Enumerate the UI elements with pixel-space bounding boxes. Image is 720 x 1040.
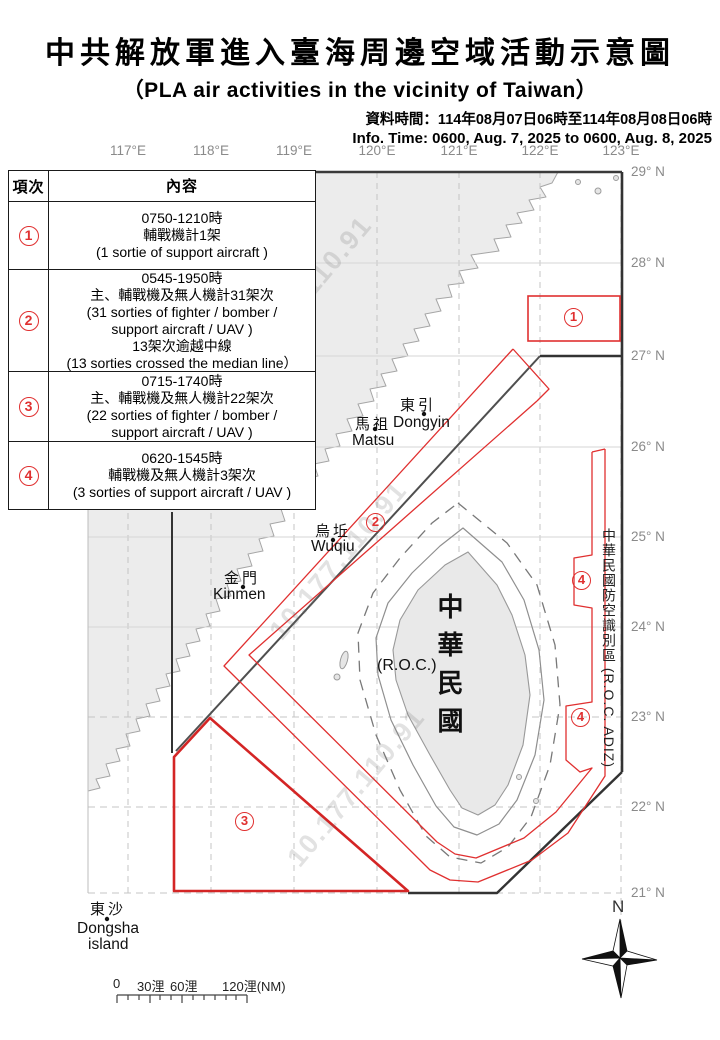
scale-label-0: 0 xyxy=(113,976,120,991)
lat-label: 26° N xyxy=(631,439,665,454)
label-adiz: 中華民國防空識別區 (R.O.C. ADIZ) xyxy=(599,528,619,768)
lat-label: 23° N xyxy=(631,709,665,724)
table-header-row: 項次 內容 xyxy=(9,171,315,201)
col-header-content: 內容 xyxy=(49,171,315,201)
scale-label-30: 30浬 xyxy=(137,976,164,995)
row4-content: 0620-1545時 輔戰機及無人機計3架次 (3 sorties of sup… xyxy=(49,442,315,509)
data-time-en: Info. Time: 0600, Aug. 7, 2025 to 0600, … xyxy=(0,130,720,147)
lat-label: 22° N xyxy=(631,799,665,814)
table-row: 2 0545-1950時 主、輔戰機及無人機計31架次 (31 sorties … xyxy=(9,269,315,371)
col-header-item: 項次 xyxy=(9,171,49,201)
place-wuqiu-en: Wuqiu xyxy=(311,538,355,556)
row2-number: 2 xyxy=(19,311,39,331)
activity-table: 項次 內容 1 0750-1210時 輔戰機計1架 (1 sortie of s… xyxy=(8,170,316,510)
page-title: 中共解放軍進入臺海周邊空域活動示意圖 xyxy=(0,28,720,72)
scale-bar xyxy=(117,995,247,1003)
zone4-marker: 4 xyxy=(572,571,591,590)
row2-content: 0545-1950時 主、輔戰機及無人機計31架次 (31 sorties of… xyxy=(49,270,315,371)
lat-label: 21° N xyxy=(631,885,665,900)
zone1-marker: 1 xyxy=(564,308,583,327)
pla-activity-map-page: 10.177.110.91 10.177.110.91 10.177.110.9… xyxy=(0,0,720,1040)
scale-label-120: 120浬(NM) xyxy=(222,976,286,995)
lat-label: 24° N xyxy=(631,619,665,634)
table-row: 4 0620-1545時 輔戰機及無人機計3架次 (3 sorties of s… xyxy=(9,441,315,509)
place-matsu-en: Matsu xyxy=(352,432,394,450)
place-kinmen-zh: 金門 xyxy=(224,567,260,588)
lat-label: 29° N xyxy=(631,164,665,179)
compass-north-label: N xyxy=(612,897,624,917)
penghu-islands xyxy=(334,650,350,680)
place-dongsha-zh: 東沙 xyxy=(90,898,126,919)
compass-rose xyxy=(582,919,657,998)
data-time-zh: 資料時間：114年08月07日06時至114年08月08日06時 xyxy=(0,108,720,129)
scale-label-60: 60浬 xyxy=(170,976,197,995)
row3-number: 3 xyxy=(19,397,39,417)
row4-number: 4 xyxy=(19,466,39,486)
label-adiz-en: (R.O.C. ADIZ) xyxy=(601,663,617,768)
zhejiang-islets xyxy=(576,176,619,195)
lat-label: 25° N xyxy=(631,529,665,544)
header: 中共解放軍進入臺海周邊空域活動示意圖 （PLA air activities i… xyxy=(0,0,720,147)
zone4-marker-south: 4 xyxy=(571,708,590,727)
table-row: 1 0750-1210時 輔戰機計1架 (1 sortie of support… xyxy=(9,201,315,269)
lat-label: 27° N xyxy=(631,348,665,363)
label-taiwan-roc-en: (R.O.C.) xyxy=(377,657,437,675)
zone2-marker: 2 xyxy=(366,513,385,532)
place-dongyin-en: Dongyin xyxy=(393,414,450,432)
place-dongyin-zh: 東引 xyxy=(400,394,436,415)
place-dongsha-en2: island xyxy=(88,936,129,954)
place-kinmen-en: Kinmen xyxy=(213,586,266,604)
green-orchid-islands xyxy=(517,775,539,804)
zone3-marker: 3 xyxy=(235,812,254,831)
place-matsu-zh: 馬祖 xyxy=(355,413,391,434)
page-subtitle: （PLA air activities in the vicinity of T… xyxy=(0,74,720,104)
label-adiz-zh: 中華民國防空識別區 xyxy=(601,528,617,663)
lat-label: 28° N xyxy=(631,255,665,270)
row1-content: 0750-1210時 輔戰機計1架 (1 sortie of support a… xyxy=(49,202,315,269)
row3-content: 0715-1740時 主、輔戰機及無人機計22架次 (22 sorties of… xyxy=(49,372,315,441)
row1-number: 1 xyxy=(19,226,39,246)
table-row: 3 0715-1740時 主、輔戰機及無人機計22架次 (22 sorties … xyxy=(9,371,315,441)
